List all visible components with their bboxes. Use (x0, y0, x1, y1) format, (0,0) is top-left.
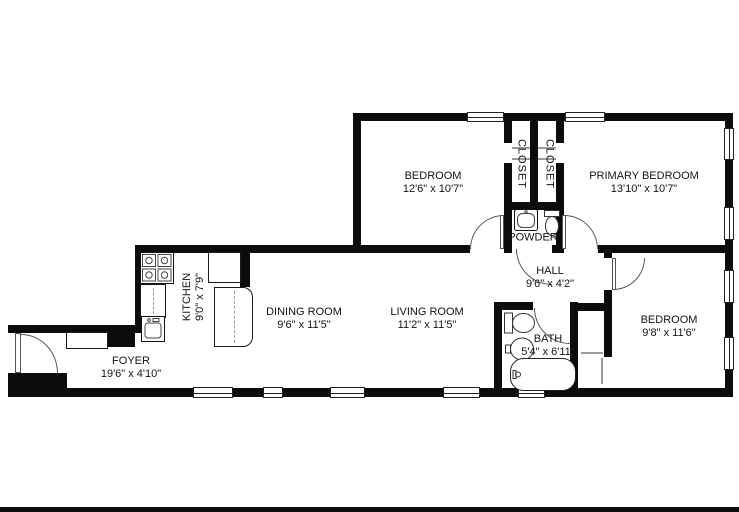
window (724, 270, 734, 303)
room-label-primary-bedroom: PRIMARY BEDROOM 13'10" x 10'7" (589, 170, 699, 196)
room-name: KITCHEN (181, 273, 194, 321)
door-leaf (500, 215, 504, 249)
wall-segment (556, 121, 564, 143)
wall-segment (283, 388, 330, 397)
room-name: CLOSET (515, 139, 528, 189)
kitchen-peninsula (214, 287, 253, 347)
door-leaf (612, 258, 616, 290)
door-arc (613, 258, 645, 290)
door-arc (564, 215, 598, 249)
room-label-kitchen: KITCHEN 9'0" x 7'9" (181, 273, 207, 321)
bathtub (510, 358, 576, 391)
room-label-closet-right: CLOSET (543, 139, 556, 189)
window (443, 387, 480, 398)
wall-segment (135, 245, 470, 253)
wall-segment (504, 121, 512, 143)
room-dims: 5'4" x 6'11" (521, 346, 574, 359)
room-name: CLOSET (543, 139, 556, 189)
room-name: LIVING ROOM (390, 306, 463, 319)
wall-segment (494, 302, 533, 310)
room-name: DINING ROOM (266, 306, 342, 319)
room-label-dining-room: DINING ROOM 9'6" x 11'5" (266, 306, 342, 332)
window (565, 112, 605, 122)
room-dims: 19'6" x 4'10" (101, 368, 161, 381)
room-label-bedroom-top: BEDROOM 12'6" x 10'7" (403, 170, 463, 196)
window (193, 387, 233, 398)
window (467, 112, 504, 122)
room-dims: 9'8" x 11'6" (641, 327, 698, 340)
room-name: BATH (521, 333, 574, 346)
wall-segment (604, 290, 612, 357)
room-dims: 9'6" x 4'2" (526, 278, 574, 291)
wall-segment (353, 113, 733, 121)
room-dims: 9'0" x 7'9" (194, 273, 207, 321)
powder-sink (514, 209, 538, 231)
window (330, 387, 365, 398)
counter-dash-line (153, 288, 154, 314)
room-label-living-room: LIVING ROOM 11'2" x 11'5" (390, 306, 463, 332)
door-arc (21, 334, 58, 373)
room-dims: 13'10" x 10'7" (589, 183, 699, 196)
kitchen-counter (140, 284, 166, 318)
wall-segment (240, 253, 250, 287)
room-name: BEDROOM (403, 170, 463, 183)
closet-door-line (581, 352, 603, 354)
wall-segment (598, 245, 733, 253)
window (724, 337, 734, 370)
wall-segment (604, 253, 612, 258)
door-leaf (562, 215, 566, 249)
room-name: POWDER (508, 232, 558, 245)
foyer-closet (66, 332, 108, 349)
refrigerator (208, 252, 241, 283)
wall-segment (365, 388, 443, 397)
kitchen-sink (141, 316, 165, 342)
floor-plan: BEDROOM 12'6" x 10'7" CLOSET CLOSET PRIM… (0, 0, 739, 512)
wall-segment (353, 121, 361, 253)
window (263, 387, 283, 398)
closet-door-line (601, 358, 603, 384)
room-label-bedroom-right: BEDROOM 9'8" x 11'6" (641, 314, 698, 340)
wall-segment (107, 333, 135, 347)
window (724, 207, 734, 240)
wall-segment (530, 121, 538, 210)
wall-segment (504, 245, 512, 253)
window (724, 128, 734, 160)
room-dims: 11'2" x 11'5" (390, 319, 463, 332)
room-label-foyer: FOYER 19'6" x 4'10" (101, 355, 161, 381)
room-name: BEDROOM (641, 314, 698, 327)
counter-dash-line (234, 291, 235, 343)
wall-segment (67, 388, 193, 397)
room-dims: 12'6" x 10'7" (403, 183, 463, 196)
door-arc (470, 215, 504, 249)
room-label-powder: POWDER (508, 232, 558, 245)
room-name: PRIMARY BEDROOM (589, 170, 699, 183)
stove (140, 252, 174, 284)
room-label-hall: HALL 9'6" x 4'2" (526, 265, 574, 291)
room-label-bath: BATH 5'4" x 6'11" (521, 333, 574, 359)
room-label-closet-left: CLOSET (515, 139, 528, 189)
room-name: HALL (526, 265, 574, 278)
room-dims: 9'6" x 11'5" (266, 319, 342, 332)
wall-segment (8, 373, 67, 397)
wall-segment (494, 302, 502, 388)
image-bottom-bar (0, 507, 739, 512)
room-name: FOYER (101, 355, 161, 368)
wall-segment (233, 388, 263, 397)
